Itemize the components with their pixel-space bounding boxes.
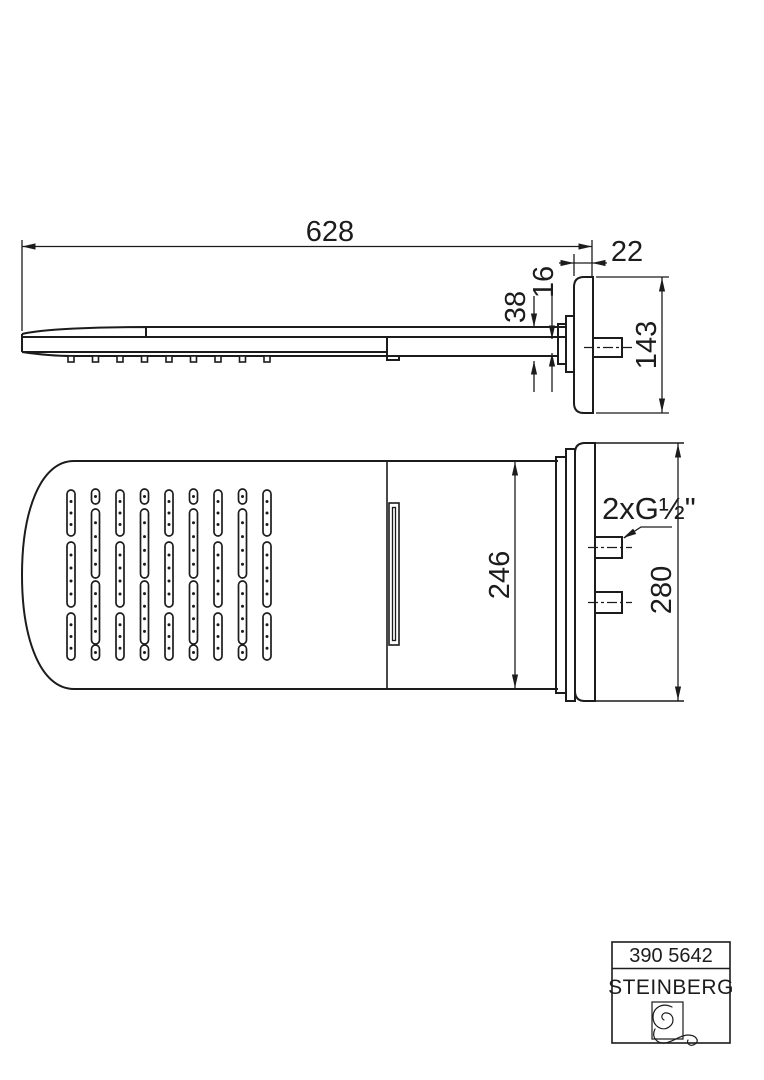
plan-nozzle-dot <box>192 651 195 654</box>
plan-nozzle-slot <box>141 509 149 578</box>
plan-nozzle-dot <box>266 567 269 570</box>
side-mount-bracket-flange <box>566 316 574 372</box>
plan-nozzle-dot <box>70 500 73 503</box>
plan-mount-bracket-step <box>556 457 566 693</box>
plan-nozzle-slot <box>92 581 100 644</box>
plan-nozzle-dot <box>119 523 122 526</box>
side-nozzle <box>215 356 221 362</box>
plan-nozzle-dot <box>168 567 171 570</box>
side-head-outline <box>22 327 566 360</box>
plan-nozzle-dot <box>119 580 122 583</box>
connection-callout: 2xG½" <box>602 491 696 538</box>
plan-nozzle-dot <box>70 512 73 515</box>
dim-280: 280 <box>646 443 678 701</box>
plan-nozzle-dot <box>70 593 73 596</box>
plan-nozzle-dot <box>192 549 195 552</box>
plan-nozzle-dot <box>266 554 269 557</box>
plan-nozzle-dot <box>266 623 269 626</box>
plan-nozzle-dot <box>192 495 195 498</box>
plan-nozzle-dot <box>168 512 171 515</box>
dimension-arrowhead <box>22 243 36 249</box>
plan-nozzle-dot <box>168 500 171 503</box>
dim-143: 143 <box>596 277 669 413</box>
plan-mount-bracket <box>556 449 575 701</box>
plan-nozzle-dot <box>217 580 220 583</box>
dim-22: 22 <box>559 236 643 276</box>
plan-nozzle-dot <box>266 580 269 583</box>
plan-nozzle-dot <box>143 651 146 654</box>
plan-nozzle-dot <box>241 563 244 566</box>
plan-waterfall-slot-outer <box>389 503 399 645</box>
plan-nozzle-dot <box>266 635 269 638</box>
plan-nozzle-dot <box>266 523 269 526</box>
side-nozzle <box>68 356 74 362</box>
plan-nozzle-dot <box>70 523 73 526</box>
technical-drawing: 628 22 38 16 143 <box>0 0 764 1080</box>
plan-nozzle-dot <box>143 495 146 498</box>
side-nozzle <box>93 356 99 362</box>
plan-nozzle-slot <box>67 542 75 607</box>
plan-nozzle-dot <box>119 512 122 515</box>
plan-nozzle-dot <box>143 630 146 633</box>
dim-246-label: 246 <box>484 551 516 599</box>
plan-nozzle-dot <box>94 630 97 633</box>
plan-nozzle-dot <box>241 651 244 654</box>
side-nozzle-row <box>68 356 270 362</box>
dimension-arrowhead <box>675 444 681 458</box>
side-nozzle <box>166 356 172 362</box>
article-number: 390 5642 <box>629 945 712 967</box>
plan-nozzle-dot <box>168 523 171 526</box>
plan-waterfall-slot-inner <box>393 508 396 641</box>
plan-nozzle-slot <box>190 581 198 644</box>
dim-280-label: 280 <box>646 566 678 614</box>
plan-nozzle-dot <box>70 647 73 650</box>
dimension-arrowhead <box>659 278 665 292</box>
plan-nozzle-dot <box>241 495 244 498</box>
side-view: 628 22 38 16 143 <box>22 216 669 413</box>
dim-628-label: 628 <box>306 216 354 248</box>
plan-nozzle-dot <box>217 500 220 503</box>
dimension-arrowhead <box>592 260 606 266</box>
plan-nozzle-dot <box>266 500 269 503</box>
plan-nozzle-dot <box>168 647 171 650</box>
side-mount-bracket-step <box>558 324 566 364</box>
plan-nozzle-dot <box>94 563 97 566</box>
plan-nozzle-dot <box>70 554 73 557</box>
dimension-arrowhead <box>659 399 665 413</box>
plan-nozzle-dot <box>119 567 122 570</box>
plan-nozzle-dot <box>94 535 97 538</box>
plan-nozzle-dot <box>119 554 122 557</box>
plan-nozzle-dot <box>241 521 244 524</box>
plan-nozzle-dot <box>143 521 146 524</box>
plan-nozzle-dot <box>94 617 97 620</box>
plan-nozzle-dot <box>168 623 171 626</box>
plan-nozzle-dot <box>217 554 220 557</box>
plan-nozzle-dot <box>143 535 146 538</box>
plan-body-outline <box>22 461 558 689</box>
plan-nozzle-slot <box>239 581 247 644</box>
plan-nozzle-field <box>67 489 271 660</box>
side-nozzle <box>264 356 270 362</box>
plan-nozzle-dot <box>143 563 146 566</box>
plan-wall-plate-band <box>575 443 595 701</box>
plan-waterfall-slot <box>389 503 399 645</box>
title-block: 390 5642 STEINBERG <box>608 942 734 1045</box>
side-nozzle <box>191 356 197 362</box>
plan-nozzle-dot <box>94 549 97 552</box>
plan-nozzle-dot <box>70 580 73 583</box>
plan-nozzle-dot <box>192 592 195 595</box>
plan-nozzle-dot <box>217 647 220 650</box>
dimension-arrowhead <box>512 675 518 689</box>
plan-nozzle-dot <box>217 567 220 570</box>
plan-view: 246 280 2xG½" <box>22 443 696 701</box>
plan-nozzle-dot <box>94 495 97 498</box>
side-nozzle <box>240 356 246 362</box>
plan-nozzle-dot <box>266 593 269 596</box>
plan-nozzle-dot <box>70 623 73 626</box>
plan-nozzle-dot <box>217 623 220 626</box>
dim-22-label: 22 <box>611 236 643 268</box>
plan-nozzle-dot <box>119 500 122 503</box>
plan-nozzle-dot <box>217 512 220 515</box>
plan-nozzle-dot <box>168 635 171 638</box>
dimension-arrowhead <box>531 361 537 375</box>
plan-nozzle-slot <box>239 509 247 578</box>
plan-nozzle-dot <box>241 592 244 595</box>
plan-nozzle-dot <box>241 630 244 633</box>
plan-nozzle-dot <box>217 635 220 638</box>
plan-nozzle-dot <box>143 549 146 552</box>
brand-name: STEINBERG <box>608 976 734 999</box>
dim-16-label: 16 <box>528 266 560 298</box>
side-wall-plate <box>574 277 593 413</box>
plan-nozzle-dot <box>143 592 146 595</box>
plan-nozzle-slot <box>92 509 100 578</box>
plan-nozzle-dot <box>217 593 220 596</box>
dim-38: 38 <box>500 291 534 392</box>
plan-nozzle-slot <box>263 542 271 607</box>
dimension-arrowhead <box>675 687 681 701</box>
dim-143-label: 143 <box>631 321 663 369</box>
dimension-arrowhead <box>512 462 518 476</box>
plan-nozzle-dot <box>266 647 269 650</box>
plan-nozzle-slot <box>214 542 222 607</box>
plan-nozzle-dot <box>119 623 122 626</box>
plan-nozzle-dot <box>119 593 122 596</box>
side-nozzle <box>142 356 148 362</box>
plan-nozzle-dot <box>241 617 244 620</box>
plan-nozzle-slot <box>141 581 149 644</box>
plan-nozzle-dot <box>168 554 171 557</box>
plan-nozzle-dot <box>192 563 195 566</box>
connection-label: 2xG½" <box>602 491 696 526</box>
dimension-arrowhead <box>579 243 593 249</box>
dimension-arrowhead <box>561 260 575 266</box>
plan-nozzle-dot <box>94 521 97 524</box>
plan-nozzle-dot <box>119 647 122 650</box>
plan-nozzle-dot <box>70 635 73 638</box>
plan-nozzle-dot <box>94 651 97 654</box>
plan-nozzle-dot <box>192 617 195 620</box>
plan-nozzle-dot <box>168 580 171 583</box>
plan-nozzle-dot <box>143 605 146 608</box>
plan-nozzle-dot <box>143 617 146 620</box>
plan-nozzle-dot <box>70 567 73 570</box>
plan-nozzle-slot <box>165 542 173 607</box>
plan-nozzle-dot <box>241 535 244 538</box>
plan-nozzle-dot <box>192 605 195 608</box>
plan-nozzle-dot <box>94 592 97 595</box>
side-nozzle <box>117 356 123 362</box>
plan-nozzle-dot <box>266 512 269 515</box>
plan-nozzle-dot <box>192 630 195 633</box>
dim-246: 246 <box>484 461 516 689</box>
plan-nozzle-slot <box>116 542 124 607</box>
plan-nozzle-slot <box>190 509 198 578</box>
plan-nozzle-dot <box>192 535 195 538</box>
plan-nozzle-dot <box>192 521 195 524</box>
plan-nozzle-dot <box>217 523 220 526</box>
plan-mount-bracket-flange <box>566 449 575 701</box>
plan-nozzle-dot <box>94 605 97 608</box>
side-mount-bracket <box>558 316 574 372</box>
steinberg-swirl-logo-icon <box>652 1002 697 1045</box>
plan-nozzle-dot <box>119 635 122 638</box>
plan-nozzle-dot <box>168 593 171 596</box>
dimension-arrowhead <box>621 529 636 541</box>
plan-nozzle-dot <box>241 605 244 608</box>
plan-nozzle-dot <box>241 549 244 552</box>
